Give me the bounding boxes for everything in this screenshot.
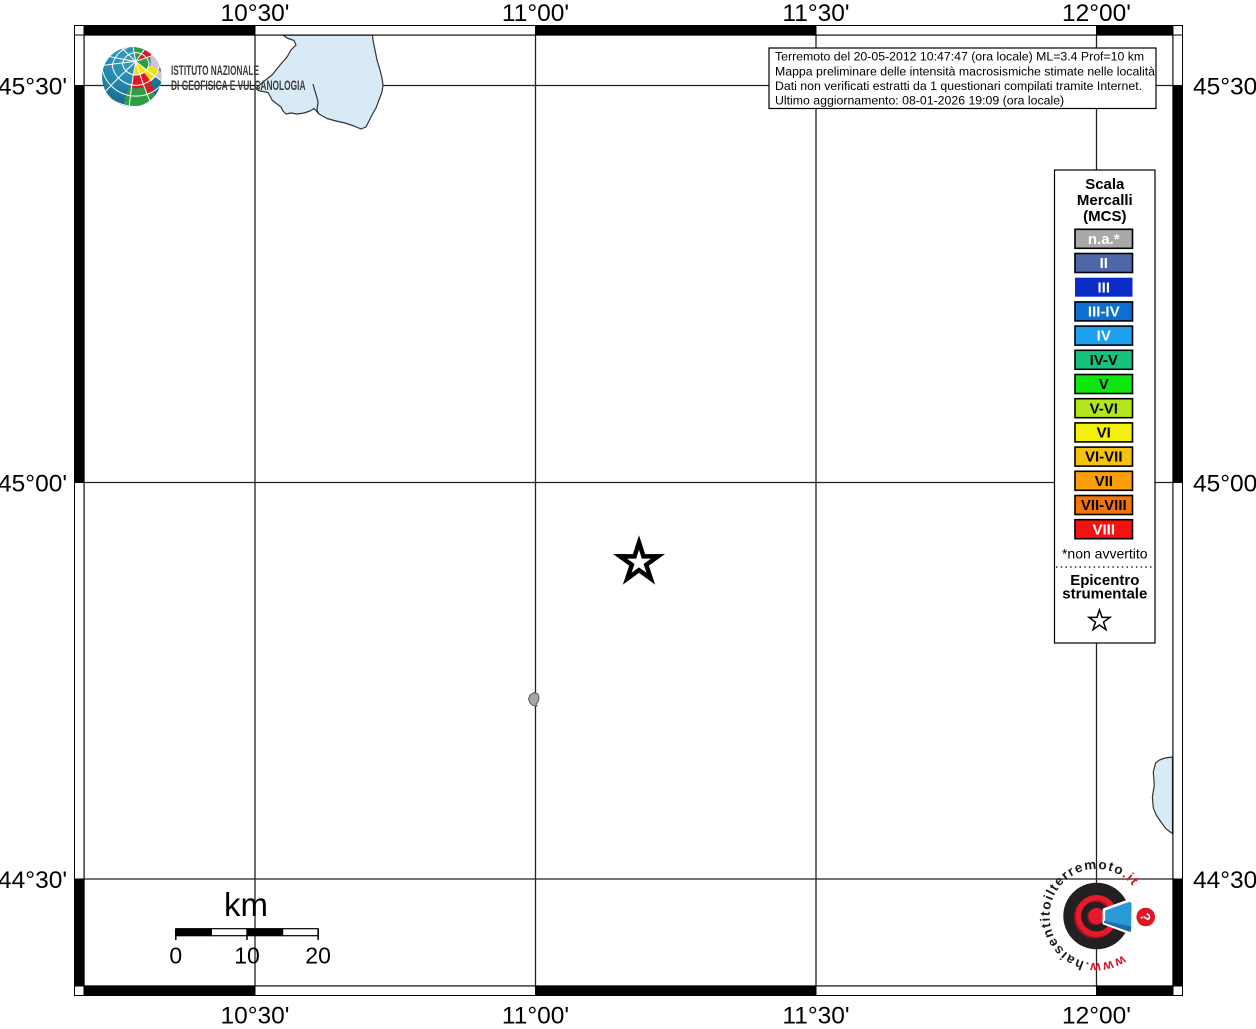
svg-text:0: 0 [169, 943, 182, 969]
svg-text:(MCS): (MCS) [1083, 208, 1126, 225]
svg-text:Terremoto del 20-05-2012 10:47: Terremoto del 20-05-2012 10:47:47 (ora l… [775, 50, 1144, 64]
svg-text:12°00': 12°00' [1062, 0, 1131, 27]
svg-text:44°30': 44°30' [0, 867, 67, 894]
svg-text:11°30': 11°30' [782, 1003, 849, 1025]
svg-text:IV-V: IV-V [1090, 352, 1118, 369]
svg-text:45°00': 45°00' [0, 471, 67, 498]
svg-text:ISTITUTO NAZIONALE: ISTITUTO NAZIONALE [171, 63, 259, 78]
svg-text:10°30': 10°30' [221, 1003, 290, 1025]
svg-text:Ultimo aggiornamento: 08-01-20: Ultimo aggiornamento: 08-01-2026 19:09 (… [775, 94, 1064, 108]
svg-text:20: 20 [305, 943, 331, 969]
svg-text:11°00': 11°00' [502, 0, 569, 27]
svg-text:12°00': 12°00' [1062, 1003, 1131, 1025]
svg-text:III: III [1097, 279, 1110, 296]
svg-text:45°00': 45°00' [1193, 471, 1256, 498]
svg-text:44°30': 44°30' [1193, 867, 1256, 894]
svg-text:Mappa preliminare delle intens: Mappa preliminare delle intensità macros… [775, 64, 1155, 78]
svg-text:45°30': 45°30' [0, 74, 67, 101]
svg-text:V-VI: V-VI [1090, 400, 1118, 417]
svg-text:10: 10 [234, 943, 260, 969]
svg-text:V: V [1099, 376, 1109, 393]
svg-text:45°30': 45°30' [1193, 74, 1256, 101]
svg-text:IV: IV [1097, 328, 1111, 345]
svg-text:km: km [224, 886, 268, 923]
svg-text:n.a.*: n.a.* [1088, 231, 1120, 248]
svg-text:Dati non verificati estratti d: Dati non verificati estratti da 1 questi… [775, 79, 1142, 93]
svg-text:*non avvertito: *non avvertito [1062, 546, 1148, 562]
svg-text:Scala: Scala [1085, 176, 1125, 193]
svg-text:VI-VII: VI-VII [1085, 449, 1123, 466]
svg-text:III-IV: III-IV [1088, 304, 1120, 321]
svg-text:DI GEOFISICA E VULCANOLOGIA: DI GEOFISICA E VULCANOLOGIA [171, 78, 306, 93]
svg-text:11°30': 11°30' [782, 0, 849, 27]
svg-text:VIII: VIII [1092, 521, 1115, 538]
svg-text:Mercalli: Mercalli [1077, 192, 1133, 209]
svg-text:VII: VII [1095, 473, 1113, 490]
svg-text:10°30': 10°30' [221, 0, 290, 27]
svg-text:strumentale: strumentale [1062, 586, 1147, 603]
svg-text:VII-VIII: VII-VIII [1081, 497, 1127, 514]
svg-text:VI: VI [1097, 425, 1111, 442]
svg-text:II: II [1100, 255, 1108, 272]
svg-text:11°00': 11°00' [502, 1003, 569, 1025]
